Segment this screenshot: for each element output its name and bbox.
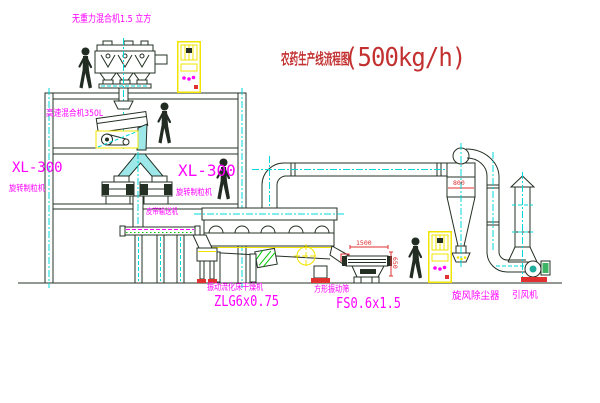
high-speed-mixer bbox=[96, 101, 148, 150]
dim-cyclone-body: 800 bbox=[453, 180, 465, 187]
label-cyclone: 旋风除尘器 bbox=[452, 292, 500, 302]
cad-process-flow-screenshot: 农药生产线流程图 (500kg/h) 无重力混合机1.5 立方 高速混合机350… bbox=[0, 0, 600, 403]
label-high-speed-mixer: 高速混合机350L bbox=[46, 110, 103, 119]
label-dryer-model: ZLG6x0.75 bbox=[214, 294, 279, 309]
granulator-right-inlet bbox=[152, 176, 167, 182]
label-belt-conveyor: 皮带输送机 bbox=[146, 208, 178, 216]
square-vibrating-screen bbox=[341, 245, 393, 283]
worker-figure bbox=[158, 103, 171, 144]
label-granulator-left-model: XL-300 bbox=[12, 161, 63, 175]
drawing-capacity: (500kg/h) bbox=[344, 45, 465, 71]
label-granulator-left-name: 旋转制粒机 bbox=[9, 185, 45, 194]
belt-conveyor bbox=[120, 226, 200, 283]
control-cabinet bbox=[178, 42, 201, 93]
control-cabinet bbox=[429, 232, 452, 283]
drawing-title: 农药生产线流程图 bbox=[281, 52, 349, 67]
worker-figure bbox=[409, 238, 422, 279]
dim-screen-length: 1500 bbox=[356, 240, 372, 247]
label-granulator-right-name: 旋转制粒机 bbox=[176, 189, 212, 198]
label-screen-model: FS0.6x1.5 bbox=[336, 296, 401, 311]
induced-draft-fan bbox=[521, 261, 550, 282]
dim-screen-height: 650 bbox=[392, 257, 399, 269]
fluid-bed-dryer bbox=[194, 208, 348, 283]
worker-figure bbox=[79, 48, 92, 89]
hatch-panel bbox=[255, 248, 277, 267]
granulator-left bbox=[102, 182, 134, 204]
label-fan: 引风机 bbox=[512, 291, 538, 301]
granulator-left-inlet bbox=[114, 176, 129, 182]
label-zero-gravity-mixer: 无重力混合机1.5 立方 bbox=[72, 15, 151, 25]
granulator-right bbox=[140, 182, 172, 204]
label-granulator-right-model: XL-300 bbox=[178, 163, 236, 179]
